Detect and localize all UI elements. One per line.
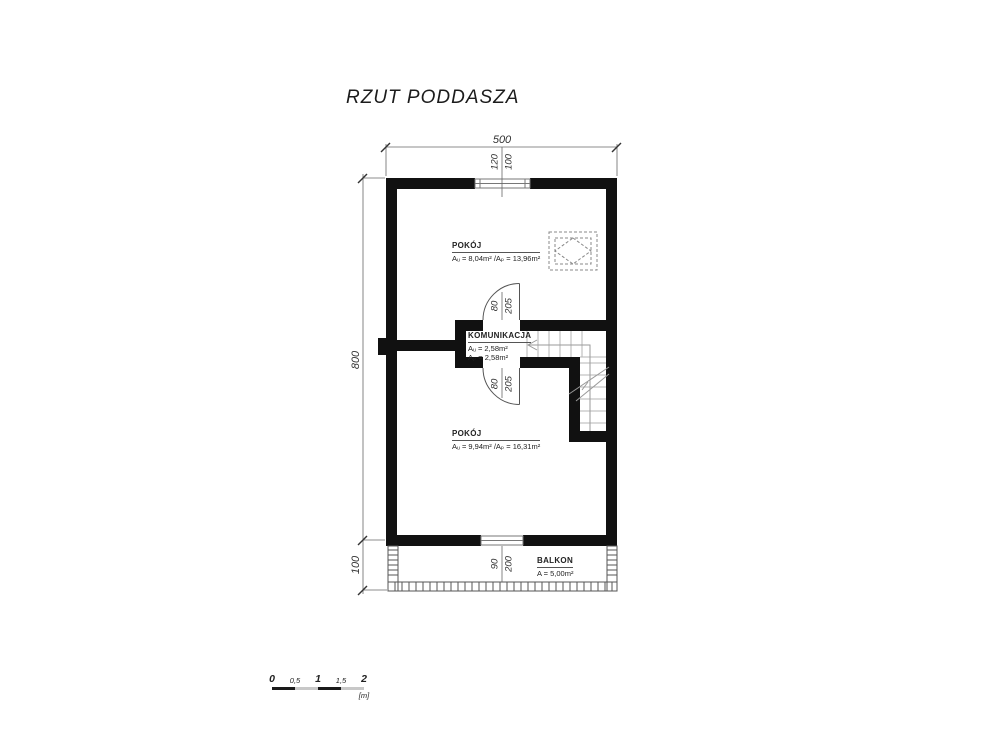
dim-top-window-offset: 100 [504, 154, 515, 170]
scale-segment-dark [272, 687, 295, 690]
dim-total-height: 800 [350, 351, 362, 369]
dim-upper-door-width: 80 [490, 301, 501, 312]
room-area: Aᵤ = 2,58m² [468, 344, 531, 353]
room-area: Aᵤ = 9,94m² /Aₚ = 16,31m² [452, 442, 540, 451]
balcony-railing [388, 546, 617, 591]
dim-lower-door-height: 205 [504, 376, 515, 392]
floor-plan-canvas: RZUT PODDASZA 500 120 100 800 100 80 205… [0, 0, 1000, 750]
dim-upper-door-height: 205 [504, 298, 515, 314]
top-window [475, 179, 530, 188]
room-label-komunikacja: KOMUNIKACJA Aᵤ = 2,58m² Aₚ = 2,58m² [468, 331, 531, 363]
dim-balcony-depth: 100 [350, 556, 362, 574]
room-label-balkon: BALKON A = 5,00m² [537, 556, 573, 578]
dim-balcony-door-height: 200 [504, 556, 515, 572]
room-label-pokoj-lower: POKÓJ Aᵤ = 9,94m² /Aₚ = 16,31m² [452, 429, 540, 451]
room-area: A = 5,00m² [537, 569, 573, 578]
scale-label-15: 1,5 [336, 676, 346, 685]
page-title: RZUT PODDASZA [346, 87, 519, 109]
scale-label-2: 2 [361, 673, 367, 685]
scale-segment-light [341, 687, 364, 690]
scale-label-05: 0,5 [290, 676, 300, 685]
skylight-symbol [549, 232, 597, 270]
scale-bar: 0 0,5 1 1,5 2 [m] [260, 672, 390, 704]
dim-total-width: 500 [493, 134, 511, 146]
dim-top-window-width: 120 [490, 154, 501, 170]
dimension-ticks [358, 143, 621, 595]
room-name: KOMUNIKACJA [468, 331, 531, 343]
floor-plan-drawing [0, 0, 1000, 750]
room-area: Aᵤ = 8,04m² /Aₚ = 13,96m² [452, 254, 540, 263]
scale-label-1: 1 [315, 673, 321, 685]
scale-unit: [m] [359, 691, 369, 700]
room-name: POKÓJ [452, 241, 540, 253]
dim-balcony-door-width: 90 [490, 559, 501, 570]
balcony-door [481, 536, 523, 545]
room-label-pokoj-upper: POKÓJ Aᵤ = 8,04m² /Aₚ = 13,96m² [452, 241, 540, 263]
scale-label-0: 0 [269, 673, 275, 685]
dim-lower-door-width: 80 [490, 379, 501, 390]
scale-segment-light [295, 687, 318, 690]
staircase-lower-flight [580, 357, 606, 423]
room-name: BALKON [537, 556, 573, 568]
scale-segment-dark [318, 687, 341, 690]
room-name: POKÓJ [452, 429, 540, 441]
room-area: Aₚ = 2,58m² [468, 353, 531, 362]
staircase-upper-flight [527, 331, 582, 357]
